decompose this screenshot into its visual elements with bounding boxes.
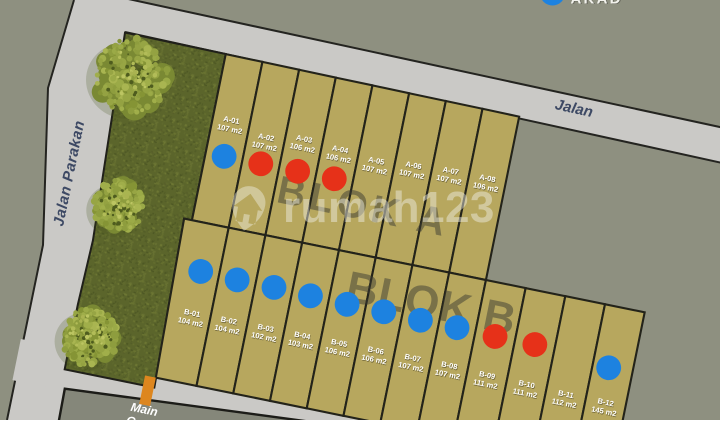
svg-text:AKAD: AKAD (571, 0, 623, 8)
svg-text:rumah123: rumah123 (283, 183, 495, 232)
